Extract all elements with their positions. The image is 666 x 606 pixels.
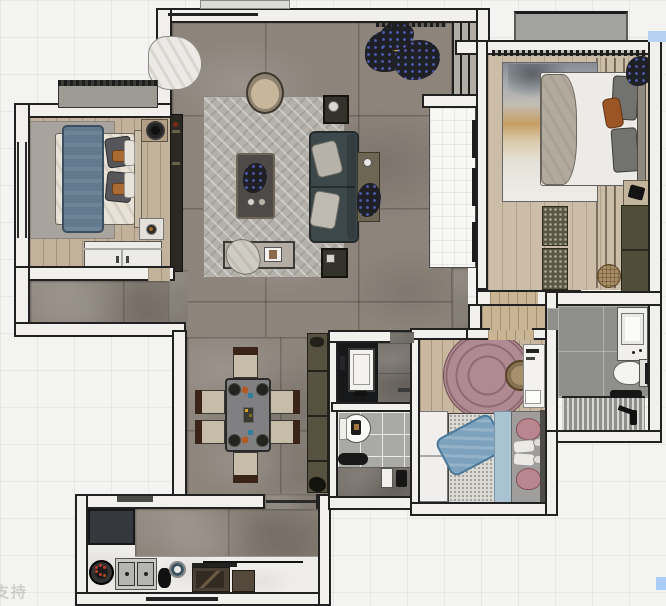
bed-left-blue-blanket — [62, 125, 104, 233]
door-opening-masterbath[interactable] — [547, 308, 558, 330]
gas-burner[interactable] — [89, 560, 114, 585]
tray-food — [245, 409, 248, 412]
master-bath-sink — [621, 313, 644, 345]
window-line-kitchen-bottom — [146, 597, 218, 601]
shower-fixture-head[interactable] — [630, 410, 637, 425]
dining-chair-back — [233, 475, 258, 483]
master-foot-bench-cushion[interactable] — [542, 248, 568, 290]
vanity-items — [340, 356, 345, 370]
cabinet-bottom-plant — [309, 477, 326, 492]
vanity-sink-basin — [353, 354, 370, 385]
burner-flame-dot — [95, 566, 98, 569]
cabinet-decor — [310, 337, 324, 347]
fridge[interactable] — [88, 509, 135, 545]
tray-food — [249, 414, 252, 417]
entry-door-leaf[interactable] — [266, 500, 316, 503]
door-opening-guestbath[interactable] — [390, 332, 414, 343]
master-foot-bench-cushion[interactable] — [542, 206, 568, 246]
kitchen-cabinet-brown[interactable] — [232, 570, 255, 592]
kitchen-vent — [117, 496, 153, 502]
window-line-bedroom-left — [25, 142, 27, 238]
sofa-seam — [311, 186, 355, 188]
wall-masterbath-top — [545, 291, 662, 306]
wall-kitchen-right — [318, 494, 331, 606]
bed-left-white-pillow — [124, 172, 135, 198]
table-lamp[interactable] — [146, 121, 165, 140]
bed-master-pillow — [610, 127, 639, 173]
vanity-marble-mark — [398, 388, 410, 392]
wall-shaft-top — [422, 94, 478, 108]
wall-kitchen-top — [75, 494, 265, 509]
wall-bath-kid-divider — [410, 330, 420, 510]
wall-master-left — [476, 40, 488, 290]
cabinet-shelf-line — [307, 415, 328, 417]
lightwell-shaft — [429, 107, 476, 268]
cabinet-panel — [196, 571, 224, 588]
guest-shower-fixture[interactable] — [396, 470, 407, 487]
end-table-item — [326, 254, 335, 263]
round-pouf[interactable] — [597, 264, 621, 288]
desk-pad — [525, 390, 541, 404]
kid-pink-pillow — [516, 468, 541, 490]
kid-white-pillow — [513, 452, 536, 467]
shower-threshold-item — [610, 390, 642, 398]
floorplan-canvas: 支持 — [0, 0, 666, 606]
blue-cup — [248, 430, 253, 435]
living-extension-floor[interactable] — [30, 281, 172, 322]
closet-speckle-edge — [58, 80, 158, 86]
wall-bath-bottom — [328, 496, 420, 510]
master-wardrobe-divider — [621, 249, 650, 251]
cabinet-shelf-line — [307, 370, 328, 372]
dining-chair-back — [293, 420, 300, 444]
guest-bath-sink-edge — [339, 418, 347, 440]
watermark-text: 支持 — [0, 581, 28, 602]
door-opening-master[interactable] — [490, 292, 538, 304]
coffee-table-cup — [258, 198, 266, 206]
wall-masterbath-bottom — [545, 430, 662, 443]
cabinet-shelf-line — [307, 460, 328, 462]
kid-bed-runner — [494, 411, 512, 504]
wardrobe-shelf-line — [84, 248, 162, 250]
tall-olive-cabinet[interactable] — [307, 333, 328, 493]
wall-kid-right-lower — [545, 430, 558, 516]
tv-cabinet-item — [172, 130, 180, 133]
door-opening-bedroom-left[interactable] — [148, 268, 170, 281]
vanity-faucet — [355, 391, 367, 396]
window-line-living-top — [168, 13, 258, 16]
guest-shower-tray[interactable] — [381, 468, 393, 488]
sink-drain-dot — [144, 572, 148, 576]
side-table-cup — [363, 158, 372, 167]
faucet-dot — [632, 351, 635, 354]
dining-plate — [228, 434, 241, 447]
wall-kid-bottom — [410, 502, 558, 516]
wall-dining-left — [172, 330, 187, 505]
guest-bath-soap-accent — [354, 424, 359, 430]
wall-extension-bottom — [14, 322, 186, 337]
guest-toilet[interactable] — [338, 453, 368, 465]
round-armchair-seat — [251, 79, 279, 109]
balcony-ac-unit[interactable] — [514, 11, 628, 43]
end-table-kettle — [328, 101, 339, 112]
hallway-wood-floor[interactable] — [482, 304, 545, 330]
tray-dish-accent — [149, 227, 153, 231]
wall-right-outer — [648, 40, 662, 443]
wardrobe-handle — [116, 256, 119, 263]
bed-left-white-pillow — [124, 140, 135, 166]
kid-pink-pillow — [516, 418, 541, 440]
windowsill-plants — [492, 50, 646, 56]
window-line-bedroom-left — [17, 142, 19, 238]
dining-plate — [256, 383, 269, 396]
bed-master-folded-blanket — [541, 74, 577, 185]
wall-kitchen-left — [75, 494, 88, 606]
end-table-bottom[interactable] — [321, 248, 348, 278]
dining-chair-back — [195, 390, 202, 414]
wall-kid-top-mid — [466, 328, 490, 340]
round-hob[interactable] — [169, 561, 186, 578]
dining-plate — [256, 434, 269, 447]
watermark-swatch-bottom-right — [656, 577, 666, 590]
wall-vanity-bath-divider — [331, 402, 417, 412]
tv-cabinet-item — [172, 162, 180, 165]
windowsill-plants-living — [376, 21, 446, 27]
coffee-table-cup — [247, 198, 255, 206]
faucet-dot — [639, 349, 642, 352]
wall-dining-vanity-divider — [328, 330, 338, 506]
tv-cabinet[interactable] — [170, 114, 183, 272]
dining-plate — [228, 383, 241, 396]
tv-cabinet-item — [173, 122, 178, 127]
door-opening-kid[interactable] — [488, 330, 534, 340]
watermark-swatch-top-right — [648, 31, 666, 42]
wardrobe-handle — [126, 256, 129, 263]
sink-drain-dot — [125, 572, 129, 576]
kitchen-floor[interactable] — [135, 509, 318, 556]
bench-book-page — [269, 250, 277, 259]
wall-kid-top-left — [410, 328, 472, 340]
dining-chair-back — [195, 420, 202, 444]
bed-left-headboard — [134, 130, 142, 228]
desk-item — [526, 349, 539, 353]
dining-chair-back — [293, 390, 300, 414]
desk-item — [526, 357, 535, 360]
ac-box-top — [200, 0, 290, 9]
dining-chair-back — [233, 347, 258, 355]
blue-cup — [248, 393, 253, 398]
